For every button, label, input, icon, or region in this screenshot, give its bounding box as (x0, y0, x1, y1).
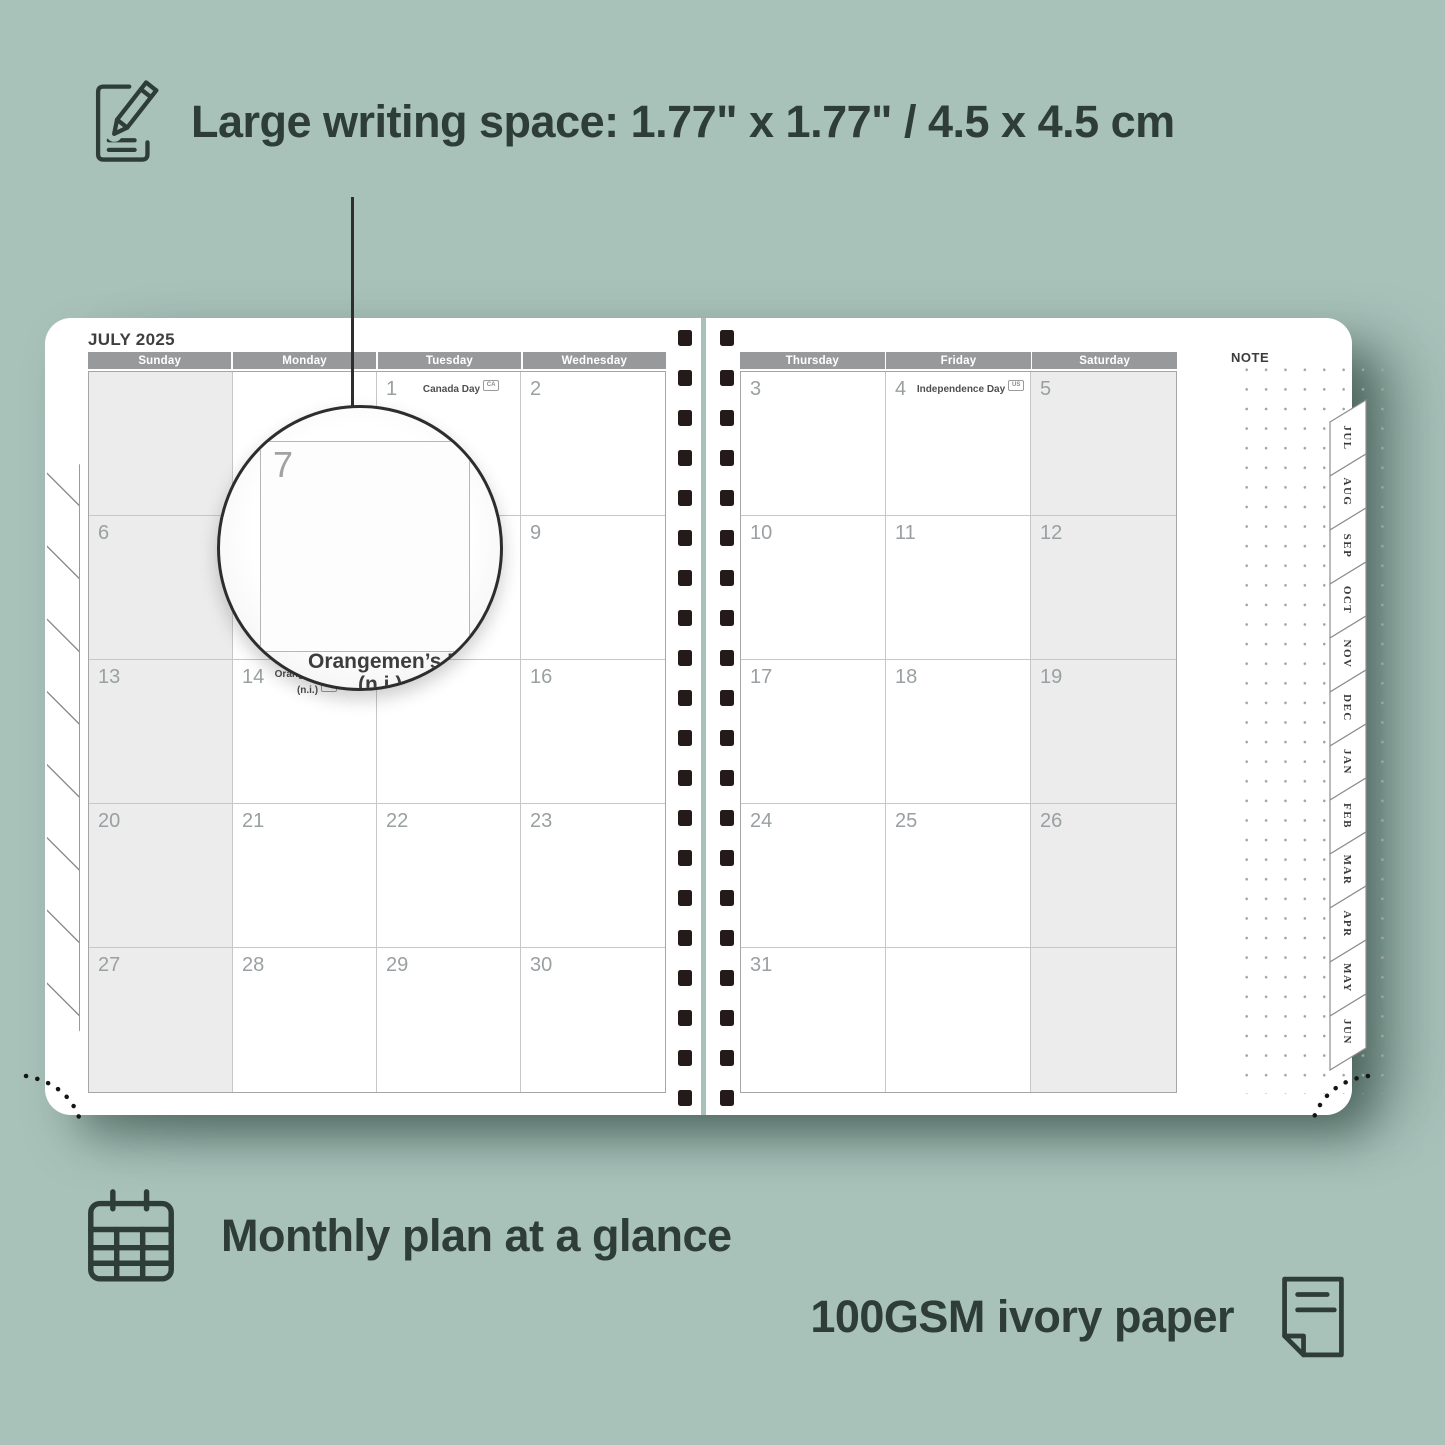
day-number (89, 379, 98, 385)
page-edge-hatch-strip (47, 440, 80, 1055)
day-header-row: SundayMondayTuesdayWednesday (88, 352, 666, 369)
spiral-hole (720, 930, 734, 946)
spiral-hole (678, 1050, 692, 1066)
day-number: 6 (89, 516, 109, 545)
month-tab-label: APR (1341, 910, 1353, 937)
day-cell: 21 (233, 804, 377, 948)
day-number (886, 955, 895, 961)
spiral-hole (720, 690, 734, 706)
day-cell: 22 (377, 804, 521, 948)
day-cell: 18 (886, 660, 1031, 804)
month-tab-label: JUN (1341, 1019, 1353, 1045)
day-number: 11 (886, 516, 916, 545)
day-number (1031, 955, 1040, 961)
day-number: 13 (89, 660, 120, 689)
month-tab-label: NOV (1341, 640, 1353, 669)
spiral-hole (678, 810, 692, 826)
day-header-cell: Tuesday (378, 352, 521, 369)
day-header-row: ThursdayFridaySaturday (740, 352, 1177, 369)
day-header-cell: Monday (233, 352, 376, 369)
pencil-note-icon (85, 78, 167, 166)
day-cell: 20 (89, 804, 233, 948)
day-number: 23 (521, 804, 552, 833)
holiday-label: Canada DayCA (407, 380, 515, 397)
spiral-hole (720, 610, 734, 626)
day-header-cell: Saturday (1032, 352, 1177, 369)
day-cell: 28 (233, 948, 377, 1092)
day-cell: 16 (521, 660, 665, 804)
day-cell: 2 (521, 372, 665, 516)
spiral-hole (678, 570, 692, 586)
spiral-hole (720, 410, 734, 426)
planner-page-right: ThursdayFridaySaturday 34Independence Da… (706, 318, 1352, 1115)
day-cell: 23 (521, 804, 665, 948)
spiral-hole (678, 890, 692, 906)
spiral-hole (720, 1010, 734, 1026)
day-number: 12 (1031, 516, 1062, 545)
corner-arc-bottom-left (22, 1066, 94, 1124)
spiral-binding (675, 330, 735, 1115)
day-header-cell: Thursday (740, 352, 885, 369)
planner-page-left: JULY 2025 SundayMondayTuesdayWednesday 1… (45, 318, 701, 1115)
month-tab-label: FEB (1341, 803, 1353, 829)
calendar-grid-right: 34Independence DayUS51011121718192425263… (740, 371, 1177, 1093)
day-cell: 30 (521, 948, 665, 1092)
day-number: 25 (886, 804, 917, 833)
spiral-hole (720, 1090, 734, 1106)
holiday-label: Independence DayUS (916, 380, 1025, 397)
spiral-hole (678, 530, 692, 546)
spiral-hole (678, 410, 692, 426)
day-number: 20 (89, 804, 120, 833)
spiral-hole (720, 850, 734, 866)
spiral-hole (678, 730, 692, 746)
spiral-hole (720, 330, 734, 346)
monthly-plan-label: Monthly plan at a glance (221, 1210, 732, 1262)
spiral-hole (678, 610, 692, 626)
day-cell: 13 (89, 660, 233, 804)
day-number (233, 379, 242, 385)
spiral-hole (720, 570, 734, 586)
day-number: 19 (1031, 660, 1062, 689)
corner-arc-bottom-right (1300, 1066, 1372, 1124)
spiral-hole (720, 450, 734, 466)
day-cell: 4Independence DayUS (886, 372, 1031, 516)
day-cell: 5 (1031, 372, 1176, 516)
calendar-grid-icon (85, 1188, 177, 1284)
spiral-hole (720, 770, 734, 786)
spiral-hole (720, 890, 734, 906)
month-title: JULY 2025 (88, 330, 175, 350)
month-tab-label: AUG (1341, 478, 1353, 507)
month-tab-label: MAR (1341, 855, 1353, 886)
month-tab-strip: JULAUGSEPOCTNOVDECJANFEBMARAPRMAYJUN (1330, 398, 1370, 1078)
spiral-hole (678, 930, 692, 946)
spiral-hole (720, 530, 734, 546)
note-label: NOTE (1231, 350, 1277, 367)
day-cell: 31 (741, 948, 886, 1092)
month-tab-label: JUL (1341, 425, 1353, 450)
day-number: 16 (521, 660, 552, 689)
spiral-hole (678, 650, 692, 666)
day-number: 27 (89, 948, 120, 977)
spiral-hole (678, 370, 692, 386)
product-image: Large writing space: 1.77" x 1.77" / 4.5… (0, 0, 1445, 1445)
day-cell: 27 (89, 948, 233, 1092)
day-cell (89, 372, 233, 516)
spiral-hole (678, 1010, 692, 1026)
day-number: 26 (1031, 804, 1062, 833)
spiral-hole (678, 970, 692, 986)
day-number: 28 (233, 948, 264, 977)
day-cell: 26 (1031, 804, 1176, 948)
magnified-day-number: 7 (273, 444, 293, 486)
magnifier-leader-line (351, 197, 354, 407)
magnifier-circle: 7 Orangemen’s Day (n.i.) (217, 405, 503, 691)
day-cell: 17 (741, 660, 886, 804)
spiral-hole (678, 1090, 692, 1106)
calendar-right: ThursdayFridaySaturday 34Independence Da… (740, 352, 1177, 1093)
spiral-hole (678, 770, 692, 786)
day-cell: 3 (741, 372, 886, 516)
day-number: 14 (233, 660, 264, 689)
spiral-hole (720, 1050, 734, 1066)
day-cell: 24 (741, 804, 886, 948)
day-number: 9 (521, 516, 541, 545)
day-number: 1 (377, 372, 397, 401)
planner-spread: JULY 2025 SundayMondayTuesdayWednesday 1… (45, 318, 1352, 1115)
spiral-hole (678, 330, 692, 346)
paper-sheet-icon (1274, 1272, 1352, 1362)
day-cell: 29 (377, 948, 521, 1092)
day-header-cell: Sunday (88, 352, 231, 369)
day-number: 5 (1031, 372, 1051, 401)
spiral-hole (720, 650, 734, 666)
day-cell: 10 (741, 516, 886, 660)
day-number: 4 (886, 372, 906, 401)
day-number: 2 (521, 372, 541, 401)
spiral-hole (720, 490, 734, 506)
feature-paper: 100GSM ivory paper (810, 1272, 1352, 1362)
holiday-country-badge: CA (483, 380, 499, 391)
spiral-hole (678, 450, 692, 466)
day-cell (886, 948, 1031, 1092)
spiral-hole (678, 490, 692, 506)
month-tab-label: DEC (1341, 694, 1353, 722)
month-tab-label: SEP (1341, 534, 1353, 559)
spiral-hole (678, 850, 692, 866)
day-number: 17 (741, 660, 772, 689)
day-number: 31 (741, 948, 772, 977)
spiral-hole (720, 730, 734, 746)
day-number: 30 (521, 948, 552, 977)
day-number: 29 (377, 948, 408, 977)
writing-space-label: Large writing space: 1.77" x 1.77" / 4.5… (191, 96, 1175, 148)
feature-monthly-plan: Monthly plan at a glance (85, 1188, 732, 1284)
day-cell: 11 (886, 516, 1031, 660)
day-number: 18 (886, 660, 917, 689)
month-tab-label: JAN (1341, 749, 1353, 775)
magnified-holiday-text: Orangemen’s Day (308, 650, 486, 674)
day-number: 22 (377, 804, 408, 833)
day-cell: 12 (1031, 516, 1176, 660)
paper-label: 100GSM ivory paper (810, 1291, 1234, 1343)
day-number: 3 (741, 372, 761, 401)
day-number: 24 (741, 804, 772, 833)
day-cell (1031, 948, 1176, 1092)
day-cell: 25 (886, 804, 1031, 948)
spiral-hole (720, 370, 734, 386)
magnified-writing-space: 7 (260, 441, 470, 652)
month-tab-label: OCT (1341, 586, 1353, 614)
month-tab-label: MAY (1341, 963, 1353, 993)
day-cell: 9 (521, 516, 665, 660)
day-cell: 6 (89, 516, 233, 660)
day-cell: 19 (1031, 660, 1176, 804)
feature-writing-space: Large writing space: 1.77" x 1.77" / 4.5… (85, 78, 1175, 166)
day-number: 10 (741, 516, 772, 545)
holiday-country-badge: US (1008, 380, 1024, 391)
day-header-cell: Friday (886, 352, 1031, 369)
day-header-cell: Wednesday (523, 352, 666, 369)
day-number: 21 (233, 804, 264, 833)
spiral-hole (720, 970, 734, 986)
spiral-hole (720, 810, 734, 826)
spiral-hole (678, 690, 692, 706)
